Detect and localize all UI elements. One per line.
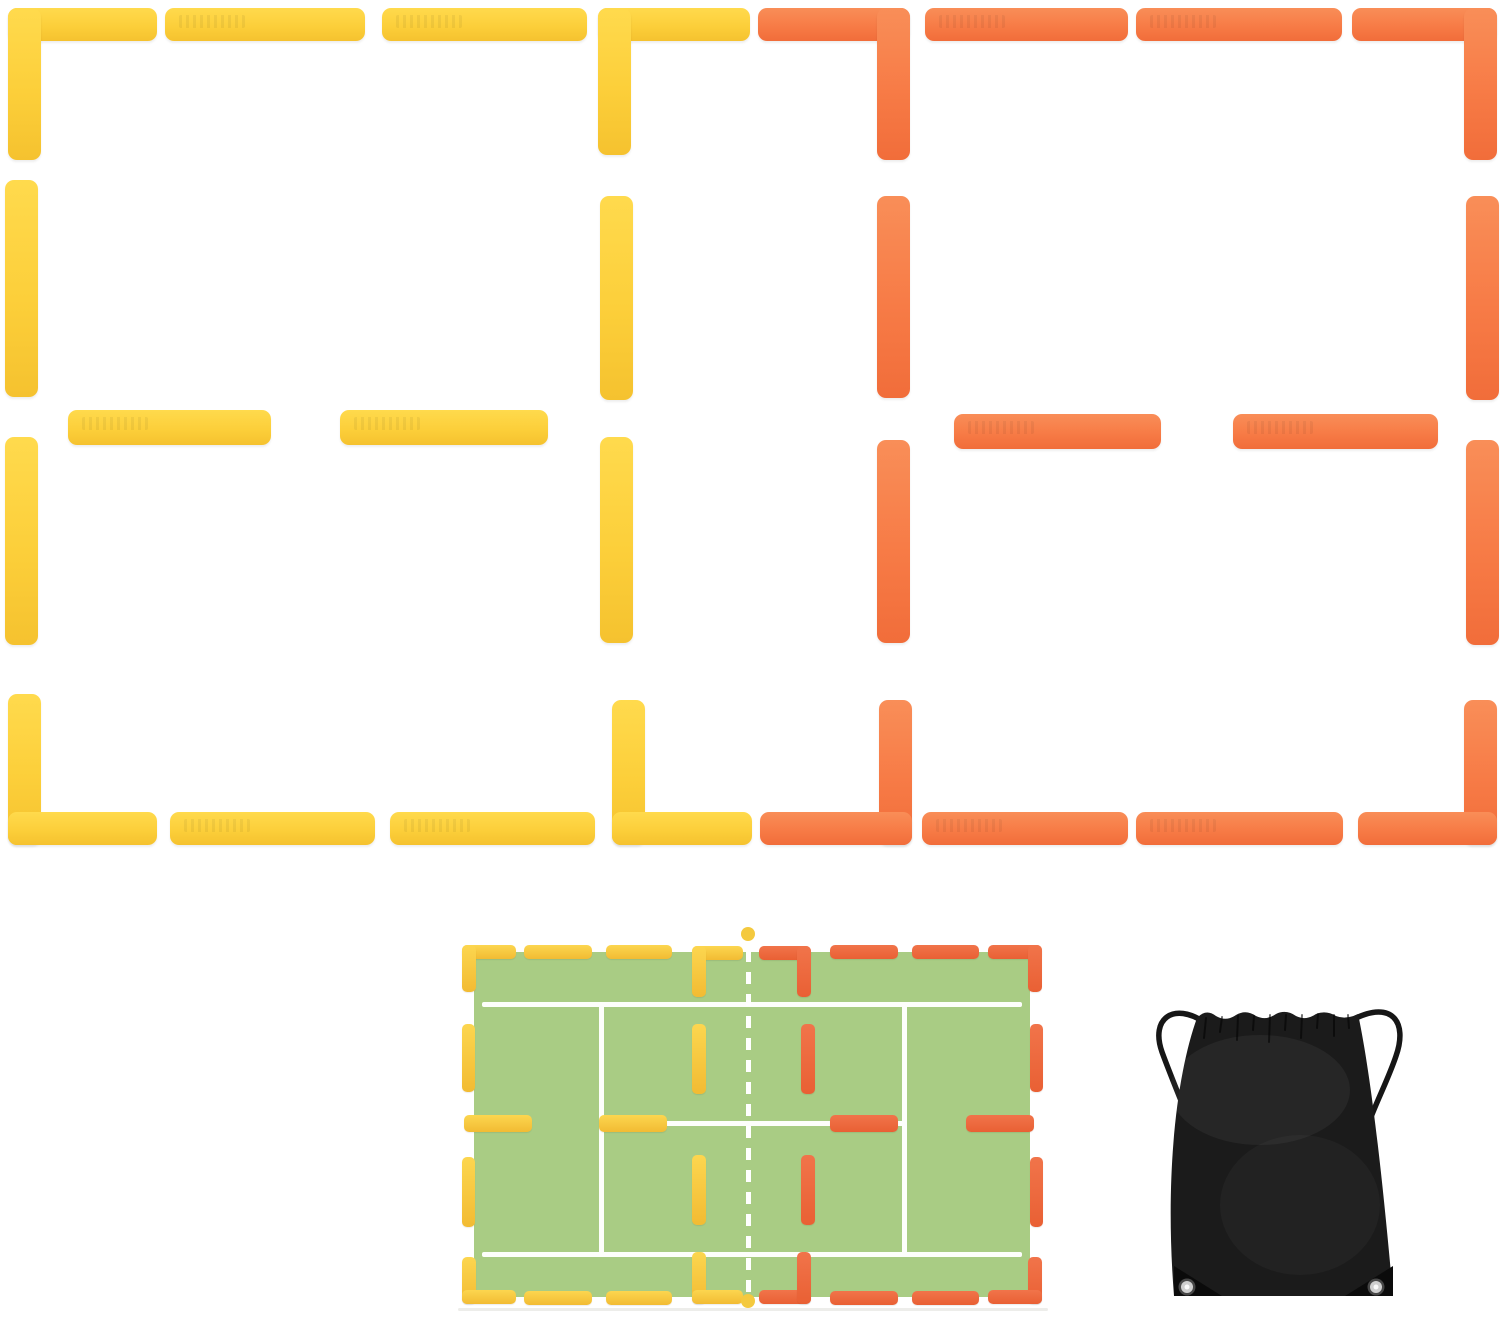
court-line-right-vertical [902, 1002, 907, 1257]
court-orange-corner-bottomcenter-v [797, 1252, 811, 1304]
court-yellow-corner-tl-v [462, 945, 476, 992]
court-orange-top-dash-2 [912, 945, 979, 959]
court-orange-mid-edge-strip [966, 1115, 1034, 1132]
court-orange-t-dash-lower [801, 1155, 815, 1225]
court-orange-corner-br-h [988, 1290, 1042, 1304]
court-yellow-left-dash-lower [462, 1157, 475, 1227]
court-orange-bottom-dash-2 [912, 1291, 979, 1305]
court-yellow-left-dash-upper [462, 1024, 475, 1092]
court-orange-corner-topcenter-v [797, 946, 811, 997]
court-orange-t-dash-upper [801, 1024, 815, 1094]
court-ground-shadow [458, 1308, 1048, 1311]
court-orange-mid-inner-strip [830, 1115, 898, 1132]
court-line-bottom [482, 1252, 1022, 1257]
court-orange-right-dash-lower [1030, 1157, 1043, 1227]
bag-sheen-lower [1220, 1135, 1380, 1275]
court-yellow-bottom-dash-1 [524, 1291, 592, 1305]
court-yellow-corner-bl-h [462, 1290, 516, 1304]
court-yellow-top-dash-1 [524, 945, 592, 959]
court-yellow-top-dash-2 [606, 945, 672, 959]
court-net-dot-top [741, 927, 755, 941]
court-yellow-corner-bottomcenter-h [692, 1290, 743, 1304]
court-line-top [482, 1002, 1022, 1007]
court-orange-bottom-dash-1 [830, 1291, 898, 1305]
product-image [0, 0, 1500, 1318]
court-yellow-t-dash-upper [692, 1024, 706, 1094]
court-orange-corner-tr-v [1028, 945, 1042, 992]
court-yellow-mid-edge-strip [464, 1115, 532, 1132]
bag-sheen-upper [1170, 1035, 1350, 1145]
court-yellow-bottom-dash-2 [606, 1291, 672, 1305]
court-orange-top-dash-1 [830, 945, 898, 959]
carry-bag [1140, 1000, 1410, 1305]
bag-grommet-left-hole [1185, 1285, 1190, 1290]
court-yellow-t-dash-lower [692, 1155, 706, 1225]
court-yellow-corner-topcenter-v [692, 946, 706, 997]
court-net-dot-bottom [741, 1294, 755, 1308]
court-orange-right-dash-upper [1030, 1024, 1043, 1092]
court-yellow-mid-inner-strip [599, 1115, 667, 1132]
court-net-dashed-line [746, 950, 751, 1294]
bag-grommet-right-hole [1374, 1285, 1379, 1290]
